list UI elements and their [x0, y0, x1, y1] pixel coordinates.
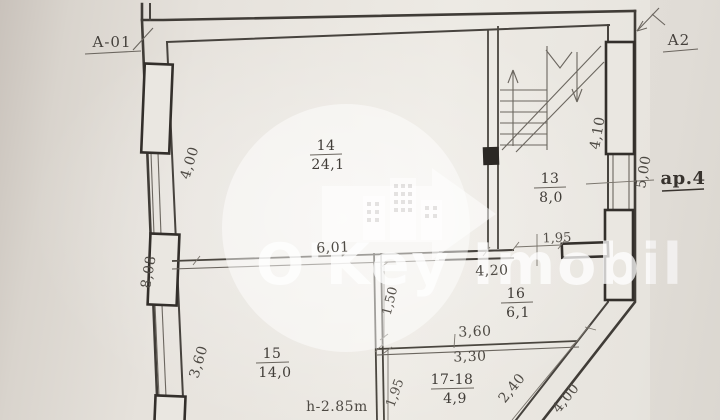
wall-block [483, 147, 500, 166]
section-label-a01: A-01 [92, 33, 132, 51]
room-label-13: 13 8,0 [534, 171, 566, 206]
room-label-17-18: 17-18 4,9 [431, 372, 474, 407]
dim-door-width: 1,95 [542, 231, 571, 247]
floor-plan: A-01 A2 [0, 0, 720, 420]
svg-text:16: 16 [507, 286, 526, 302]
dim-left-lower: 3,60 [187, 344, 212, 380]
svg-text:14: 14 [317, 138, 336, 154]
dim-diagonal-outer: 4,00 [550, 380, 583, 416]
dim-room16-bottom: 3,60 [458, 323, 492, 340]
svg-text:13: 13 [541, 171, 560, 187]
dim-room1718-left: 1,95 [383, 377, 407, 409]
height-note: h-2.85m [306, 399, 368, 415]
top-wall-outer [142, 4, 635, 20]
right-wall-inner [516, 25, 608, 420]
svg-text:8,0: 8,0 [539, 190, 563, 206]
dim-left-upper: 4,00 [178, 145, 203, 181]
right-wall-window [613, 154, 629, 212]
dim-room14-width: 6,01 [316, 239, 350, 256]
dim-diagonal-inner: 2,40 [496, 370, 529, 406]
room-label-15: 15 14,0 [256, 346, 292, 381]
svg-text:24,1: 24,1 [311, 157, 344, 173]
svg-text:4,9: 4,9 [443, 391, 467, 407]
svg-text:14,0: 14,0 [258, 365, 291, 381]
svg-text:15: 15 [263, 346, 282, 362]
dim-room1718-top: 3,30 [453, 348, 487, 365]
floor-plan-photo: A-01 A2 [0, 0, 720, 420]
top-wall-inner [167, 25, 609, 42]
svg-text:17-18: 17-18 [431, 372, 474, 388]
paper-shade [650, 0, 720, 420]
stair-zigzag [546, 50, 572, 68]
dim-room16-top: 4,20 [475, 262, 509, 279]
svg-text:6,1: 6,1 [506, 305, 530, 321]
stair-down-arrow-icon [572, 52, 582, 102]
